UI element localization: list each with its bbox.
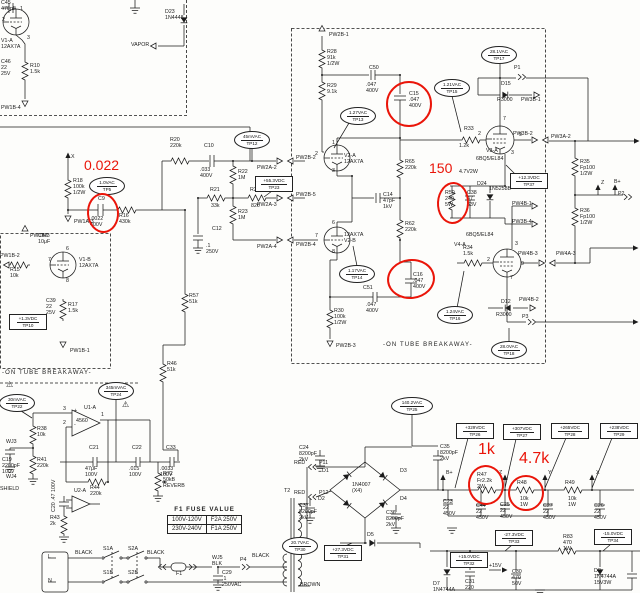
label-r46: R46 51k (167, 362, 177, 374)
label-pw2b3: PW2B-3 (336, 344, 356, 350)
fuse-value-table: F1 FUSE VALUE 100V-120V F2A 250V 230V-24… (167, 506, 242, 534)
label-u1a-type: 4560 (76, 419, 88, 425)
label-c20: C20 .47 100V (52, 480, 58, 512)
testpoint-tp23: +55.3VDCTP23 (255, 176, 293, 192)
label-pw2b2: PW2B-2 (296, 156, 316, 162)
label-v4a-pin3: 3 (515, 242, 518, 248)
label-c39: C39 22 25V (46, 299, 56, 317)
testpoint-tp28-value: +265VDC (558, 425, 582, 432)
label-red-p12: RED (294, 491, 305, 497)
testpoint-tp10-value: +1.3VDC (17, 316, 40, 323)
label-r30: R30 100k 1/2W (334, 309, 346, 327)
label-d1: D1 (322, 469, 329, 475)
label-pw3b4: PW3B-4 (512, 220, 532, 226)
label-red-p11: RED (294, 461, 305, 467)
testpoint-tp27-value: +307VDC (510, 426, 534, 433)
label-c12-val: .1 250V (206, 244, 218, 256)
label-p4: P4 (240, 558, 246, 564)
testpoint-tp13-id: TP13 (353, 117, 364, 123)
testpoint-tp14: 1.17VACTP14 (339, 265, 375, 283)
label-v2a-pin3: 3 (332, 169, 335, 175)
label-v2b-pin8: 8 (332, 250, 335, 256)
tube-v1a (3, 9, 29, 35)
label-v1b: V1-B 12AX7A (79, 258, 98, 270)
label-r35: R35 Fp100 1/2W (580, 160, 595, 178)
testpoint-tp29-value: +238VDC (607, 425, 631, 432)
testpoint-tp14-value: 1.17VAC (346, 268, 368, 275)
testpoint-tp27: +307VDCTP27 (503, 424, 541, 440)
label-bplus-top: B+ (614, 180, 621, 186)
label-u1a-pin2: 2 (63, 421, 66, 427)
fuse-table: 100V-120V F2A 250V 230V-240V F1A 250V (167, 515, 242, 534)
testpoint-tp16-value: 1.24VAC (444, 309, 466, 316)
circle-c15 (386, 81, 432, 127)
label-r33-val: 1.2k (459, 144, 469, 150)
label-brown: BROWN (300, 583, 320, 589)
label-r83: R83 470 1W (563, 535, 573, 553)
label-u1a-pin1: 1 (101, 413, 104, 419)
label-pw1b1: PW1B-1 (70, 349, 90, 355)
label-v2b-pin6: 6 (332, 221, 335, 227)
fuse-range-100-120: 100V-120V (168, 516, 207, 525)
label-pw4b1: PW4B-1 (512, 202, 532, 208)
label-pw4b2: PW4B-2 (519, 298, 539, 304)
label-pw1b2: PW1B-2 (0, 254, 20, 260)
label-v1a-pin2: 2 (2, 18, 5, 24)
testpoint-tp37: +12.3VDCTP37 (510, 173, 548, 189)
label-r29: R29 9.1k (327, 84, 337, 96)
testpoint-tp12-id: TP12 (247, 141, 258, 147)
label-c37: C37 8200pF 2kV (299, 504, 317, 522)
label-r34: R34 1.5k (463, 246, 473, 258)
label-c22: C22 (132, 446, 142, 452)
label-wj5: WJ5 BLK (212, 556, 223, 568)
testpoint-tp17: 28.1VACTP17 (481, 46, 517, 64)
label-inlet-n: N (48, 579, 52, 585)
label-r41: R41 220k (37, 458, 49, 470)
label-r44: R44 220k (90, 486, 102, 498)
testpoint-tp14-id: TP14 (352, 275, 363, 281)
label-d2: D2 (318, 497, 325, 503)
testpoint-tp17-value: 28.1VAC (488, 49, 510, 56)
label-r22: R22 1M (238, 170, 248, 182)
label-v2a: V2-A 12AX7A (344, 154, 363, 166)
label-r38: R38 10k (37, 427, 47, 439)
testpoint-tp16-id: TP16 (450, 316, 461, 322)
label-v3a: V3-A (486, 149, 498, 155)
label-x-net: X (71, 155, 75, 161)
label-pw3a2: PW3A-2 (551, 135, 571, 141)
label-pw2a3: PW2A-3 (257, 203, 277, 209)
testpoint-tp18: 28.0VACTP18 (491, 341, 527, 359)
label-pw4a3: PW4A-3 (556, 252, 576, 258)
label-u1a-minus: - (74, 423, 76, 429)
label-u1a-pin3: 3 (63, 407, 66, 413)
label-pw2a2: PW2A-2 (257, 166, 277, 172)
label-s1b: S1B (103, 571, 113, 577)
label-r21-val: 33k (211, 204, 220, 210)
label-r17: R17 1.5k (68, 303, 78, 315)
label-u1a: U1-A (84, 406, 96, 412)
label-c10-val: .033 400V (200, 168, 212, 180)
testpoint-tp27-id: TP27 (517, 433, 528, 439)
label-v1b-pin7: 7 (48, 258, 51, 264)
testpoint-tp30-id: TP30 (295, 547, 306, 553)
label-v2a-pin1: 1 (332, 141, 335, 147)
testpoint-tp32-value: +15.0VDC (456, 554, 481, 561)
testpoint-tp29-id: TP29 (614, 432, 625, 438)
testpoint-tp34-value: -15.0VDC (601, 531, 625, 538)
label-r16: R16 430k (119, 214, 131, 226)
label-pw4b3: PW4B-3 (518, 252, 538, 258)
label-c35: C35 8200pF 2kV (440, 445, 458, 463)
label-breakaway-center: -ON TUBE BREAKAWAY- (383, 342, 473, 349)
label-v4a-pin9: 9 (521, 262, 524, 268)
label-s1a: S1A (103, 547, 113, 553)
testpoint-tp15-id: TP15 (447, 89, 458, 95)
label-c21: C21 (89, 446, 99, 452)
label-d24: D24 (477, 182, 487, 188)
testpoint-tp31-id: TP31 (338, 554, 349, 560)
label-black-3: BLACK (252, 554, 269, 560)
fuse-table-title: F1 FUSE VALUE (167, 506, 242, 513)
label-r23: R23 1M (238, 210, 248, 222)
tube-v4a (493, 249, 521, 277)
label-pw1b4: PW1B-4 (1, 106, 21, 112)
testpoint-tp30: 20.7VACTP30 (282, 537, 318, 555)
label-warn-1: ⚠ (6, 381, 13, 390)
label-v1b-pin8: 8 (66, 279, 69, 285)
label-d4: D4 (400, 497, 407, 503)
label-r33: R33 (464, 127, 474, 133)
label-r21: R21 (210, 188, 220, 194)
label-r65: R65 220k (405, 160, 417, 172)
label-d15: D15 (501, 82, 511, 88)
testpoint-tp33-id: TP33 (509, 539, 520, 545)
label-p2: P2 (618, 192, 624, 198)
label-f1-label: F1 (176, 572, 182, 578)
label-c21-val: 47μF 100V (85, 467, 97, 479)
label-v1a-pin3: 3 (27, 36, 30, 42)
label-inlet-l: L (48, 555, 51, 561)
circle-r48 (508, 475, 544, 511)
testpoint-tp29: +238VDCTP29 (600, 423, 638, 439)
fuse-rating-f1a: F1A 250V (206, 525, 241, 534)
label-s2a: S2A (128, 547, 138, 553)
anno-0022: 0.022 (84, 157, 119, 173)
label-c44: C44 22 450V (476, 504, 488, 522)
label-t2: T2 (284, 489, 290, 495)
testpoint-tp18-value: 28.0VAC (498, 344, 520, 351)
label-r43: R43 2k (50, 516, 60, 528)
label-pw2b1: PW2B-1 (329, 33, 349, 39)
testpoint-tp15: 1.21VACTP15 (434, 79, 470, 97)
label-c31: C31 220 (465, 580, 475, 592)
label-bridge-type: 1N4007 (X4) (352, 483, 371, 495)
testpoint-tp32: +15.0VDCTP32 (450, 552, 488, 568)
testpoint-tp16: 1.24VACTP16 (437, 306, 473, 324)
testpoint-tp33: -27.3VDCTP33 (495, 530, 533, 546)
label-c45: C45 470pF (1, 1, 16, 13)
power-switch-blades (103, 551, 144, 582)
label-d7: D7 1N4744A (433, 582, 455, 593)
label-r72: R72 50kB REVERB (163, 472, 185, 490)
testpoint-tp10-id: TP10 (23, 323, 34, 329)
anno-150: 150 (429, 160, 452, 176)
testpoint-tp33-value: -27.3VDC (502, 532, 526, 539)
testpoint-tp5-value: 1.0VAC (97, 180, 117, 187)
label-c30: C30 470 50V (512, 570, 522, 588)
testpoint-tp17-id: TP17 (494, 56, 505, 62)
label-v1a-pin1: 1 (20, 7, 23, 13)
label-c48: C48 10μF (38, 234, 50, 246)
label-r57: R57 51k (189, 294, 199, 306)
label-pw2b5: PW2B-5 (296, 193, 316, 199)
label-v2a-pin2: 2 (315, 152, 318, 158)
label-v4a-pin7: 7 (510, 276, 513, 282)
label-r28: R28 91k 1/2W (327, 50, 339, 68)
label-d3: D3 (400, 469, 407, 475)
label-v3a-pin2: 2 (478, 132, 481, 138)
testpoint-tp25-id: TP25 (407, 407, 418, 413)
label-pw2a4: PW2A-4 (257, 245, 277, 251)
testpoint-tp26: +329VDCTP26 (456, 423, 494, 439)
label-c27: C27 22 450V (543, 504, 555, 522)
anno-1k: 1k (478, 441, 495, 459)
label-x-bot: X (596, 471, 600, 477)
testpoint-tp24-id: TP24 (111, 392, 122, 398)
label-r10: R10 1.5k (30, 64, 40, 76)
testpoint-tp30-value: 20.7VAC (289, 540, 311, 547)
label-c12: C12 (212, 227, 222, 233)
testpoint-tp10: +1.3VDCTP10 (9, 314, 47, 330)
label-p11: P11 (319, 461, 328, 467)
label-c36: C36 8200pF 2kV (386, 511, 404, 529)
label-pw3b2: PW3B-2 (513, 132, 533, 138)
label-pw3b1: PW3B-1 (521, 98, 541, 104)
label-wj3: WJ3 (6, 440, 17, 446)
label-u2a: U2-A (74, 489, 86, 495)
label-black-2: BLACK (147, 551, 164, 557)
label-d8: D8 1N4744A 15V3W (594, 569, 616, 587)
label-c22-val: .015 100V (129, 467, 141, 479)
label-vapor: VAPOR (131, 43, 149, 49)
testpoint-tp34-id: TP34 (608, 538, 619, 544)
label-v3a-pin7: 7 (503, 117, 506, 123)
fuse-range-230-240: 230V-240V (168, 525, 207, 534)
label-v4a-type: 6BQ5/EL84 (466, 233, 493, 239)
label-r62: R62 220k (405, 222, 417, 234)
label-v2b-pin7: 7 (315, 234, 318, 240)
testpoint-tp26-id: TP26 (470, 432, 481, 438)
testpoint-tp24-value: 345mVAC (104, 385, 129, 392)
testpoint-tp23-value: +55.3VDC (261, 178, 286, 185)
label-p3: P3 (522, 315, 528, 321)
testpoint-tp23-id: TP23 (269, 185, 280, 191)
fuse-f1-symbol (171, 563, 186, 571)
testpoint-tp12: 45mVACTP12 (234, 131, 270, 149)
label-warn-2: ⚠ (122, 401, 129, 410)
testpoint-tp22-value: 30mVAC (6, 397, 28, 404)
label-v2b: 12AX7A V2-B (344, 233, 363, 245)
testpoint-tp28-id: TP28 (565, 432, 576, 438)
label-plus15v: +15V (489, 564, 502, 570)
label-black-1: BLACK (75, 551, 92, 557)
label-d24-val: 1N5258B (489, 187, 511, 193)
label-wj4: WJ4 (6, 475, 17, 481)
testpoint-tp37-value: +12.3VDC (516, 175, 541, 182)
label-c51: C51 (363, 286, 373, 292)
testpoint-tp13-value: 1.27VAC (347, 110, 369, 117)
label-v3a-type: 6BQ5/EL84 (476, 157, 503, 163)
label-r3000-1: R3000 (497, 98, 513, 104)
label-v4a-pin2: 2 (487, 258, 490, 264)
label-r18: R18 100k 1/2W (73, 179, 85, 197)
label-r20: R20 220k (170, 138, 182, 150)
label-pw2b4: PW2B-4 (296, 243, 316, 249)
label-y-bot: Y (548, 471, 552, 477)
testpoint-tp37-id: TP37 (524, 182, 535, 188)
anno-4-7k: 4.7k (519, 450, 549, 468)
testpoint-tp31-value: +27.3VDC (330, 547, 355, 554)
label-p12: P12 (319, 491, 328, 497)
testpoint-tp26-value: +329VDC (463, 425, 487, 432)
label-v1b-pin6: 6 (66, 247, 69, 253)
testpoint-tp12-value: 45mVAC (241, 134, 263, 141)
testpoint-tp5: 1.0VACTP5 (89, 177, 125, 195)
label-breakaway-left: -ON TUBE BREAKAWAY- (2, 370, 92, 377)
label-d12: D12 (501, 300, 511, 306)
fuse-rating-f2a: F2A 250V (206, 516, 241, 525)
testpoint-tp32-id: TP32 (464, 561, 475, 567)
testpoint-tp28: +265VDCTP28 (551, 423, 589, 439)
label-d23: D23 1N4448 (165, 10, 184, 22)
label-c46: C46 22 25V (1, 60, 11, 78)
label-s2b: S2B (128, 571, 138, 577)
label-p1: P1 (514, 66, 520, 72)
label-c51-val: .047 400V (366, 303, 378, 315)
label-c33: C33 (166, 446, 176, 452)
label-r15: R15 10k (10, 268, 20, 280)
testpoint-tp31: +27.3VDCTP31 (324, 545, 362, 561)
testpoint-tp22-id: TP22 (12, 404, 23, 410)
label-zener-note: 4.7V2W (459, 170, 478, 176)
testpoint-tp22: 30mVACTP22 (0, 394, 35, 412)
testpoint-tp24: 345mVACTP24 (98, 382, 134, 400)
label-c25: C25 22 450V (500, 503, 512, 521)
label-r36: R36 Fp100 1/2W (580, 209, 595, 227)
label-v1a: V1-A 12AX7A (1, 39, 20, 51)
label-c26: C26 22 450V (594, 504, 606, 522)
testpoint-tp13: 1.27VACTP13 (340, 107, 376, 125)
label-r3000-2: R3000 (496, 313, 512, 319)
label-bplus-bot: B+ (446, 471, 453, 477)
testpoint-tp25-value: 140.2VAC (400, 400, 425, 407)
label-c50: C50 (369, 66, 379, 72)
testpoint-tp18-id: TP18 (504, 351, 515, 357)
label-r49: R49 (565, 481, 575, 487)
label-c10: C10 (204, 144, 214, 150)
label-c50-val: .047 400V (366, 83, 378, 95)
label-v3a-pin3: 3 (511, 151, 514, 157)
label-r49-val: 10k 1W (568, 497, 577, 509)
label-c23: C23 22 450V (443, 500, 455, 518)
label-d5: D5 (367, 533, 374, 539)
testpoint-tp34: -15.0VDCTP34 (594, 529, 632, 545)
testpoint-tp15-value: 1.21VAC (441, 82, 463, 89)
label-z-top: Z (601, 181, 604, 187)
opamp-u2a (72, 496, 90, 512)
label-shield: SHIELD (0, 487, 19, 493)
testpoint-tp25: 140.2VACTP25 (391, 397, 433, 415)
label-c14: C14 47pF 1kV (383, 193, 395, 211)
label-u1a-plus: + (74, 409, 77, 415)
testpoint-tp5-id: TP5 (103, 187, 111, 193)
schematic-canvas: C45 470pF123V1-A 12AX7AC46 22 25VR10 1.5… (0, 0, 640, 593)
label-c29: C29 .1 250VAC (222, 571, 241, 589)
tube-v1b (50, 252, 76, 278)
